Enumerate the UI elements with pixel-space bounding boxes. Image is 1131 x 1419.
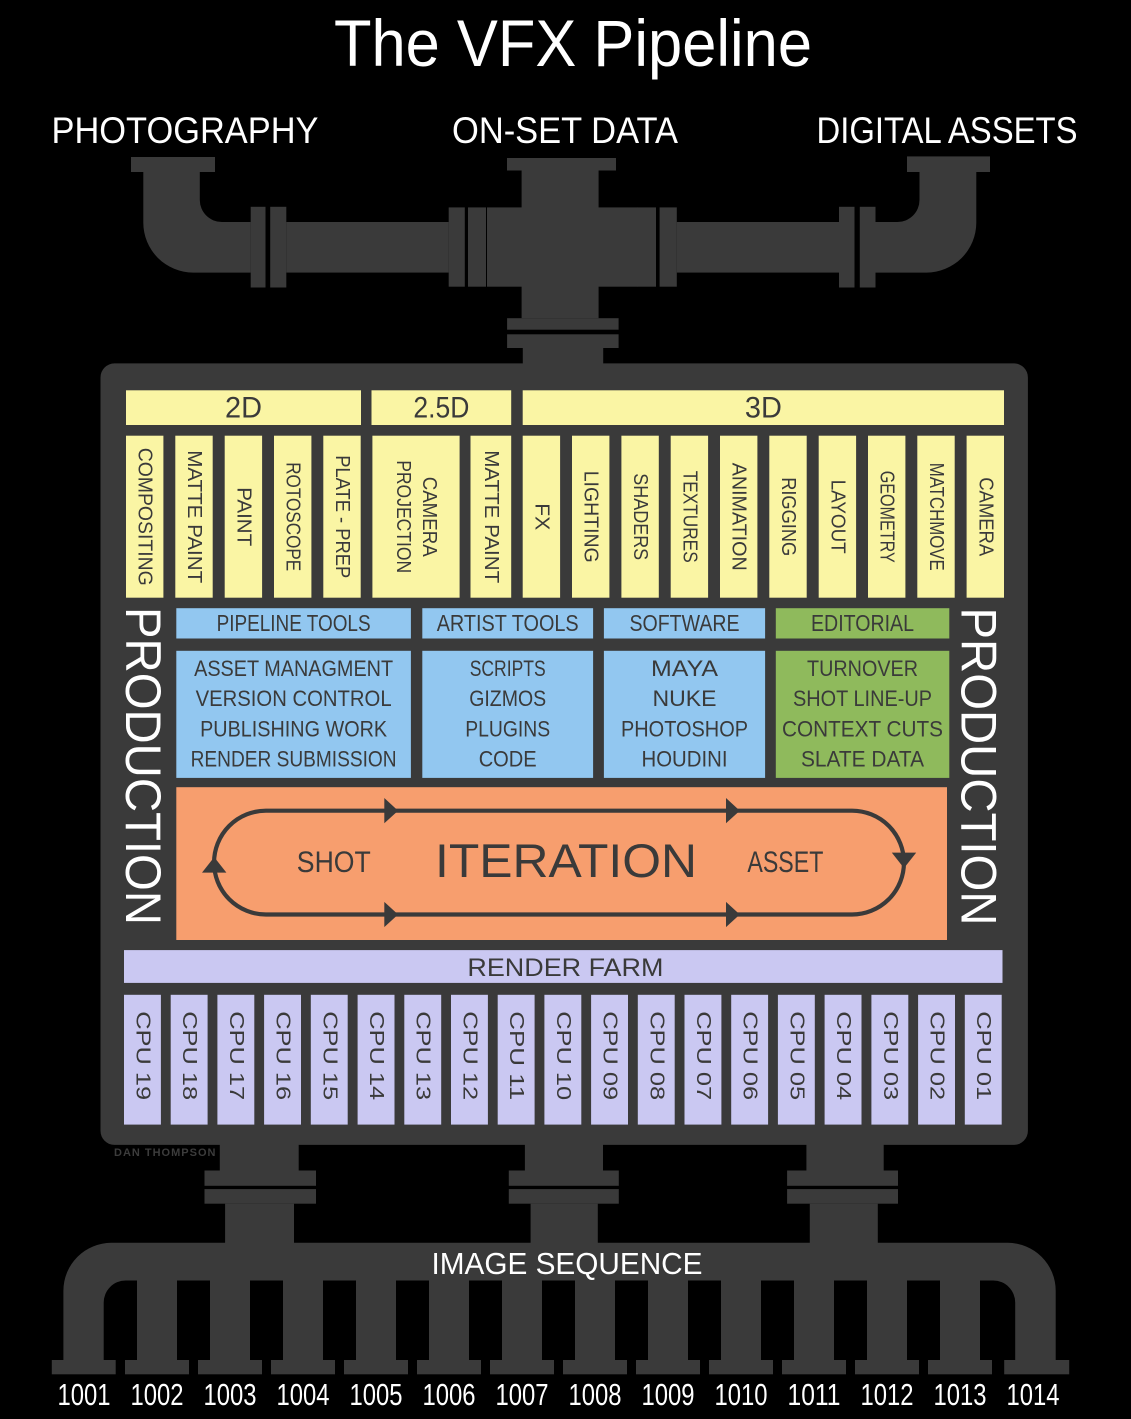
svg-text:CAMERA: CAMERA bbox=[418, 477, 440, 558]
svg-text:CPU 13: CPU 13 bbox=[412, 1011, 434, 1100]
svg-text:CPU 11: CPU 11 bbox=[505, 1011, 527, 1100]
svg-text:MATCHMOVE: MATCHMOVE bbox=[925, 463, 947, 571]
svg-text:FX: FX bbox=[530, 503, 552, 530]
svg-text:PHOTOSHOP: PHOTOSHOP bbox=[621, 716, 748, 741]
svg-text:CPU 04: CPU 04 bbox=[832, 1011, 854, 1100]
svg-text:CAMERA: CAMERA bbox=[974, 477, 996, 557]
svg-text:MATTE PAINT: MATTE PAINT bbox=[480, 450, 502, 583]
svg-text:ITERATION: ITERATION bbox=[435, 834, 697, 887]
svg-text:CPU 16: CPU 16 bbox=[272, 1011, 294, 1100]
svg-text:PRODUCTION: PRODUCTION bbox=[951, 608, 1007, 926]
svg-text:SOFTWARE: SOFTWARE bbox=[630, 610, 740, 636]
svg-text:CPU 14: CPU 14 bbox=[365, 1011, 387, 1100]
svg-text:CPU 05: CPU 05 bbox=[785, 1011, 807, 1100]
svg-text:TEXTURES: TEXTURES bbox=[678, 471, 700, 563]
svg-text:1005: 1005 bbox=[350, 1377, 403, 1412]
svg-text:1014: 1014 bbox=[1007, 1377, 1060, 1412]
svg-text:GEOMETRY: GEOMETRY bbox=[876, 471, 898, 563]
svg-text:PLATE - PREP: PLATE - PREP bbox=[331, 455, 353, 578]
svg-text:1009: 1009 bbox=[642, 1377, 695, 1412]
svg-text:The VFX Pipeline: The VFX Pipeline bbox=[334, 6, 812, 80]
svg-text:SLATE DATA: SLATE DATA bbox=[801, 747, 924, 772]
svg-text:CPU 12: CPU 12 bbox=[458, 1011, 480, 1100]
svg-text:ROTOSCOPE: ROTOSCOPE bbox=[282, 462, 304, 571]
svg-text:CPU 17: CPU 17 bbox=[225, 1011, 247, 1100]
svg-text:1008: 1008 bbox=[569, 1377, 622, 1412]
svg-text:DIGITAL ASSETS: DIGITAL ASSETS bbox=[817, 110, 1078, 151]
svg-text:HOUDINI: HOUDINI bbox=[642, 747, 728, 772]
svg-text:IMAGE SEQUENCE: IMAGE SEQUENCE bbox=[432, 1246, 703, 1281]
svg-text:MATTE PAINT: MATTE PAINT bbox=[183, 450, 205, 583]
svg-text:CPU 02: CPU 02 bbox=[926, 1011, 948, 1100]
svg-text:CONTEXT CUTS: CONTEXT CUTS bbox=[782, 716, 943, 741]
svg-text:1001: 1001 bbox=[58, 1377, 111, 1412]
svg-text:RIGGING: RIGGING bbox=[777, 477, 799, 556]
svg-text:1002: 1002 bbox=[131, 1377, 184, 1412]
svg-text:2.5D: 2.5D bbox=[413, 392, 469, 425]
svg-text:1010: 1010 bbox=[715, 1377, 768, 1412]
svg-text:VERSION CONTROL: VERSION CONTROL bbox=[196, 686, 392, 711]
svg-text:CPU 10: CPU 10 bbox=[552, 1011, 574, 1100]
svg-text:CPU 18: CPU 18 bbox=[178, 1011, 200, 1100]
svg-text:CPU 15: CPU 15 bbox=[318, 1011, 340, 1100]
svg-text:CPU 03: CPU 03 bbox=[879, 1011, 901, 1100]
svg-text:CPU 06: CPU 06 bbox=[739, 1011, 761, 1100]
svg-text:PROJECTION: PROJECTION bbox=[392, 460, 414, 573]
svg-text:1013: 1013 bbox=[934, 1377, 987, 1412]
svg-text:SCRIPTS: SCRIPTS bbox=[470, 656, 546, 681]
svg-text:PRODUCTION: PRODUCTION bbox=[115, 607, 171, 925]
svg-text:PAINT: PAINT bbox=[232, 487, 254, 546]
svg-text:TURNOVER: TURNOVER bbox=[807, 656, 918, 681]
svg-text:2D: 2D bbox=[225, 392, 262, 425]
svg-text:PHOTOGRAPHY: PHOTOGRAPHY bbox=[52, 110, 319, 151]
svg-text:ON-SET DATA: ON-SET DATA bbox=[452, 110, 678, 151]
svg-text:SHOT: SHOT bbox=[297, 846, 371, 879]
svg-text:CPU 01: CPU 01 bbox=[972, 1011, 994, 1100]
svg-text:1011: 1011 bbox=[788, 1377, 841, 1412]
svg-text:RENDER FARM: RENDER FARM bbox=[467, 954, 663, 982]
svg-text:GIZMOS: GIZMOS bbox=[469, 686, 546, 711]
svg-text:EDITORIAL: EDITORIAL bbox=[811, 610, 914, 636]
svg-text:3D: 3D bbox=[745, 392, 782, 425]
svg-text:1007: 1007 bbox=[496, 1377, 549, 1412]
svg-text:CODE: CODE bbox=[479, 747, 537, 772]
svg-text:CPU 19: CPU 19 bbox=[131, 1011, 153, 1100]
svg-text:PLUGINS: PLUGINS bbox=[465, 716, 550, 741]
svg-text:ASSET MANAGMENT: ASSET MANAGMENT bbox=[194, 656, 393, 681]
svg-text:1004: 1004 bbox=[277, 1377, 330, 1412]
svg-text:1003: 1003 bbox=[204, 1377, 257, 1412]
svg-text:MAYA: MAYA bbox=[651, 656, 718, 681]
svg-text:SHOT LINE-UP: SHOT LINE-UP bbox=[793, 686, 932, 711]
svg-text:RENDER SUBMISSION: RENDER SUBMISSION bbox=[191, 747, 397, 772]
svg-text:PUBLISHING WORK: PUBLISHING WORK bbox=[200, 716, 387, 741]
svg-text:1006: 1006 bbox=[423, 1377, 476, 1412]
svg-text:SHADERS: SHADERS bbox=[629, 473, 651, 560]
svg-text:LAYOUT: LAYOUT bbox=[826, 480, 848, 554]
svg-text:CPU 08: CPU 08 bbox=[645, 1011, 667, 1100]
svg-text:DAN THOMPSON: DAN THOMPSON bbox=[114, 1147, 216, 1159]
svg-text:LIGHTING: LIGHTING bbox=[580, 471, 602, 563]
svg-text:PIPELINE TOOLS: PIPELINE TOOLS bbox=[217, 610, 371, 636]
svg-text:ANIMATION: ANIMATION bbox=[728, 463, 750, 571]
svg-text:CPU 07: CPU 07 bbox=[692, 1011, 714, 1100]
svg-text:COMPOSITING: COMPOSITING bbox=[134, 448, 156, 586]
svg-text:NUKE: NUKE bbox=[653, 686, 717, 711]
svg-text:CPU 09: CPU 09 bbox=[599, 1011, 621, 1100]
svg-text:ASSET: ASSET bbox=[747, 846, 823, 879]
svg-text:1012: 1012 bbox=[861, 1377, 914, 1412]
svg-text:ARTIST TOOLS: ARTIST TOOLS bbox=[437, 610, 579, 636]
